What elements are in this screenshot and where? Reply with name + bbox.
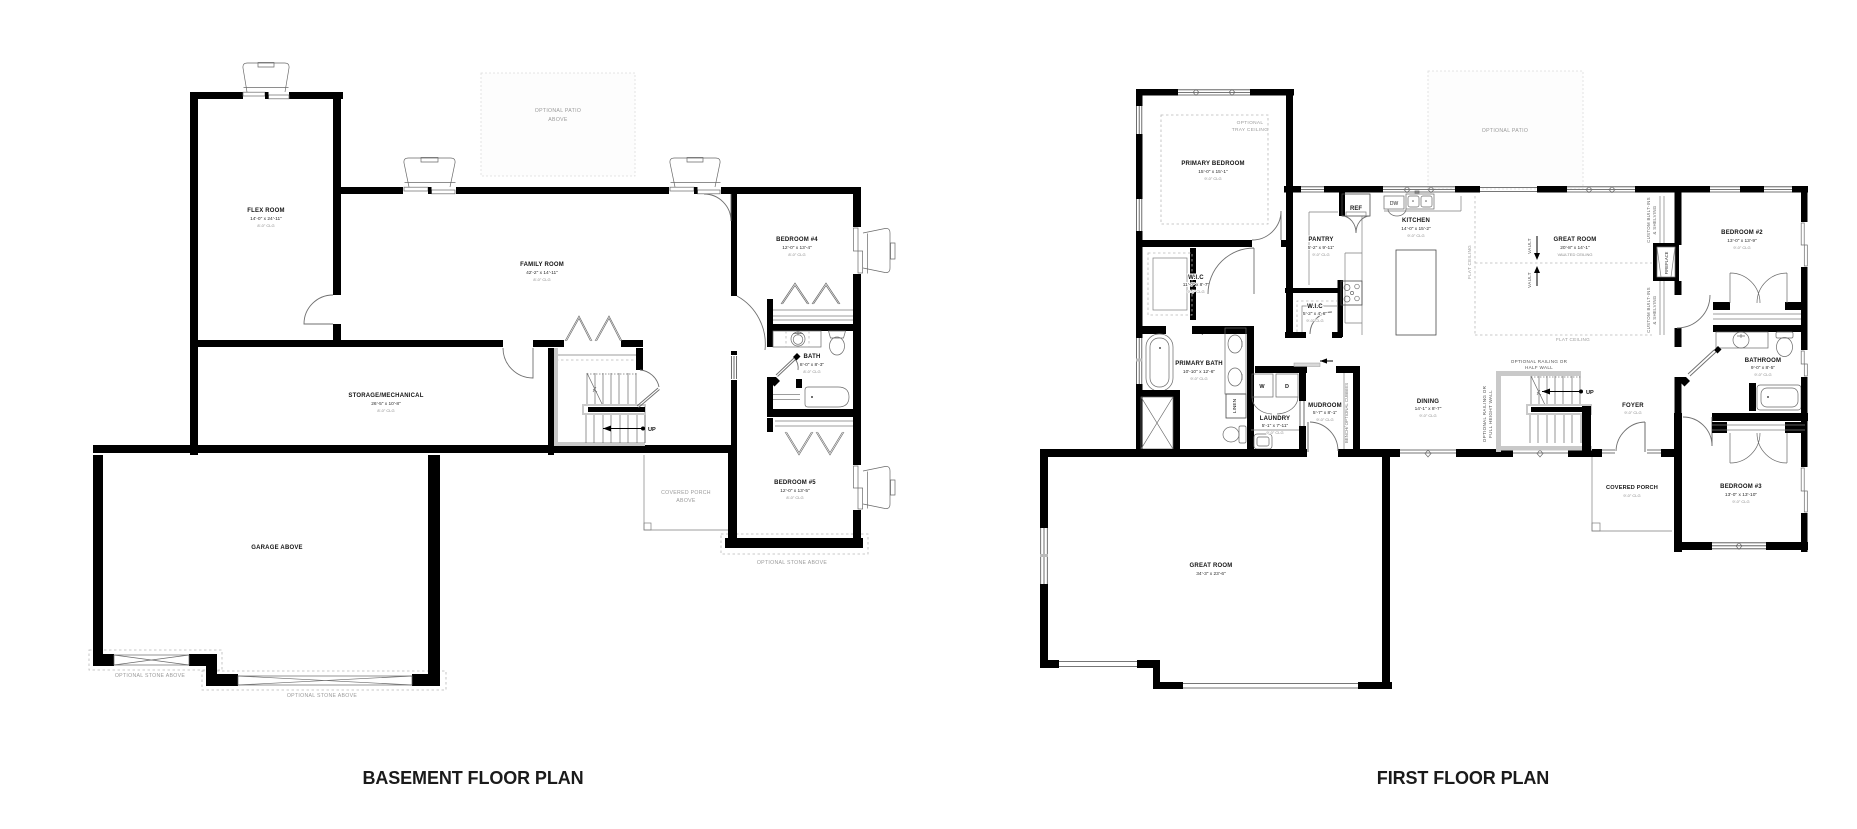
svg-text:VAULT: VAULT — [1527, 238, 1532, 254]
svg-text:BEDROOM #4: BEDROOM #4 — [776, 237, 818, 243]
svg-text:W.I.C: W.I.C — [1188, 275, 1204, 281]
svg-text:9'-0" CLG: 9'-0" CLG — [1266, 430, 1283, 435]
svg-text:PANTRY: PANTRY — [1308, 237, 1333, 243]
svg-text:W: W — [1259, 384, 1265, 390]
svg-text:BENCH/ OPTIONAL CUBBIES: BENCH/ OPTIONAL CUBBIES — [1344, 383, 1349, 443]
svg-text:9'-0" CLG: 9'-0" CLG — [1306, 318, 1323, 323]
svg-text:13'-0" x 13'-10": 13'-0" x 13'-10" — [1725, 492, 1757, 498]
svg-text:GREAT ROOM: GREAT ROOM — [1554, 237, 1597, 243]
svg-text:9'-0" CLG: 9'-0" CLG — [1407, 233, 1424, 238]
svg-text:15'-0" x 15'-1": 15'-0" x 15'-1" — [1198, 169, 1228, 175]
svg-text:FLAT CEILING: FLAT CEILING — [1556, 337, 1590, 342]
svg-text:5'-2" x 9'-11": 5'-2" x 9'-11" — [1308, 245, 1335, 251]
svg-text:& SHELVING: & SHELVING — [1652, 205, 1657, 234]
svg-text:20'-8" x 14'-1": 20'-8" x 14'-1" — [1560, 245, 1590, 251]
svg-text:ABOVE: ABOVE — [676, 498, 696, 504]
svg-text:8'-0" CLG: 8'-0" CLG — [257, 223, 274, 228]
svg-text:ABOVE: ABOVE — [548, 117, 568, 123]
svg-text:9'-0" CLG: 9'-0" CLG — [1419, 413, 1436, 418]
svg-text:LINEN: LINEN — [1232, 398, 1238, 413]
svg-text:9'-0" CLG: 9'-0" CLG — [1312, 252, 1329, 257]
svg-text:8'-0" CLG: 8'-0" CLG — [803, 369, 820, 374]
svg-text:D: D — [1285, 384, 1289, 390]
svg-text:9'-0" x 8'-5": 9'-0" x 8'-5" — [1751, 365, 1775, 371]
svg-text:14'-0" x 15'-2": 14'-0" x 15'-2" — [1401, 226, 1431, 232]
svg-text:12'-0" x 13'-5": 12'-0" x 13'-5" — [780, 488, 810, 494]
svg-text:9'-0" CLG: 9'-0" CLG — [1624, 410, 1641, 415]
svg-text:9'-0" CLG: 9'-0" CLG — [1190, 376, 1207, 381]
svg-text:PRIMARY BEDROOM: PRIMARY BEDROOM — [1181, 161, 1244, 167]
svg-text:8'-0" CLG: 8'-0" CLG — [786, 495, 803, 500]
svg-text:9'-0" CLG: 9'-0" CLG — [1204, 176, 1221, 181]
svg-text:8'-0" CLG: 8'-0" CLG — [533, 277, 550, 282]
svg-text:14'-1" x 8'-7": 14'-1" x 8'-7" — [1415, 406, 1442, 412]
svg-text:OPTIONAL RAILING OR: OPTIONAL RAILING OR — [1482, 385, 1487, 442]
svg-text:BEDROOM #2: BEDROOM #2 — [1721, 230, 1763, 236]
svg-text:HALF WALL: HALF WALL — [1525, 365, 1553, 370]
svg-text:KITCHEN: KITCHEN — [1402, 218, 1430, 224]
svg-text:5'-7" x 8'-1": 5'-7" x 8'-1" — [1313, 410, 1337, 416]
svg-text:BEDROOM #5: BEDROOM #5 — [774, 480, 816, 486]
svg-text:GREAT ROOM: GREAT ROOM — [1190, 563, 1233, 569]
svg-text:STORAGE/MECHANICAL: STORAGE/MECHANICAL — [348, 393, 423, 399]
svg-text:VAULTED CEILING: VAULTED CEILING — [1558, 252, 1593, 257]
svg-text:COVERED PORCH: COVERED PORCH — [661, 490, 711, 496]
svg-text:8'-0" x 8'-3": 8'-0" x 8'-3" — [800, 362, 824, 368]
svg-text:BATH: BATH — [803, 354, 820, 360]
svg-text:PRIMARY BATH: PRIMARY BATH — [1175, 361, 1223, 367]
svg-text:BEDROOM #3: BEDROOM #3 — [1720, 484, 1762, 490]
svg-text:MUDROOM: MUDROOM — [1308, 403, 1342, 409]
svg-text:FAMILY ROOM: FAMILY ROOM — [520, 262, 564, 268]
svg-text:GARAGE ABOVE: GARAGE ABOVE — [251, 545, 303, 551]
svg-text:8'-0" CLG: 8'-0" CLG — [377, 408, 394, 413]
svg-text:9'-0" CLG: 9'-0" CLG — [1316, 417, 1333, 422]
svg-text:UP: UP — [1586, 390, 1594, 396]
svg-text:OPTIONAL STONE ABOVE: OPTIONAL STONE ABOVE — [757, 560, 828, 566]
svg-text:42'-2" x 14'-11": 42'-2" x 14'-11" — [526, 270, 558, 276]
svg-text:9'-0" CLG: 9'-0" CLG — [1754, 372, 1771, 377]
svg-text:34'-3" x 23'-6": 34'-3" x 23'-6" — [1196, 571, 1226, 577]
svg-text:10'-10" x 12'-6": 10'-10" x 12'-6" — [1183, 369, 1215, 375]
svg-text:FIRST FLOOR PLAN: FIRST FLOOR PLAN — [1377, 768, 1549, 788]
svg-text:& SHELVING: & SHELVING — [1652, 295, 1657, 324]
svg-text:OPTIONAL STONE ABOVE: OPTIONAL STONE ABOVE — [115, 673, 186, 679]
svg-text:LAUNDRY: LAUNDRY — [1260, 416, 1291, 422]
svg-text:TRAY CEILING: TRAY CEILING — [1232, 127, 1268, 133]
svg-text:OPTIONAL PATIO: OPTIONAL PATIO — [535, 108, 581, 114]
svg-text:CUSTOM BUILT-INS: CUSTOM BUILT-INS — [1646, 197, 1651, 243]
svg-text:14'-0" x 24'-11": 14'-0" x 24'-11" — [250, 216, 282, 222]
svg-text:FLEX ROOM: FLEX ROOM — [247, 208, 284, 214]
svg-text:DW: DW — [1390, 201, 1399, 207]
svg-text:BATHROOM: BATHROOM — [1745, 358, 1781, 364]
svg-text:8'-0" CLG: 8'-0" CLG — [788, 252, 805, 257]
svg-text:9'-0" CLG: 9'-0" CLG — [1732, 499, 1749, 504]
svg-text:OPTIONAL STONE ABOVE: OPTIONAL STONE ABOVE — [287, 693, 358, 699]
svg-text:DINING: DINING — [1417, 399, 1439, 405]
svg-text:VAULT: VAULT — [1527, 272, 1532, 288]
svg-text:CUSTOM BUILT-INS: CUSTOM BUILT-INS — [1646, 287, 1651, 333]
svg-text:FLAT CEILING: FLAT CEILING — [1467, 245, 1472, 279]
svg-text:9'-0" CLG: 9'-0" CLG — [1187, 289, 1204, 294]
svg-text:5'-1" x 7'-11": 5'-1" x 7'-11" — [1262, 423, 1289, 429]
svg-text:OPTIONAL RAILING OR: OPTIONAL RAILING OR — [1511, 359, 1568, 364]
svg-text:12'-0" x 13'-4": 12'-0" x 13'-4" — [782, 245, 812, 251]
svg-text:FIREPLACE: FIREPLACE — [1664, 251, 1669, 274]
svg-text:W.I.C: W.I.C — [1307, 304, 1323, 310]
svg-text:OPTIONAL: OPTIONAL — [1237, 120, 1264, 126]
svg-text:OPTIONAL PATIO: OPTIONAL PATIO — [1482, 128, 1528, 134]
svg-text:5'-2" x 4'-6": 5'-2" x 4'-6" — [1303, 311, 1327, 317]
svg-text:9'-0" CLG: 9'-0" CLG — [1733, 245, 1750, 250]
svg-text:9'-0" CLG: 9'-0" CLG — [1623, 493, 1640, 498]
svg-text:FULL HEIGHT WALL: FULL HEIGHT WALL — [1488, 390, 1493, 438]
svg-text:26'-5" x 10'-8": 26'-5" x 10'-8" — [371, 401, 401, 407]
svg-text:11'-0" x 8'-7": 11'-0" x 8'-7" — [1183, 282, 1210, 288]
svg-text:BASEMENT FLOOR PLAN: BASEMENT FLOOR PLAN — [362, 768, 583, 788]
svg-text:REF: REF — [1350, 206, 1362, 212]
svg-text:13'-0" x 13'-9": 13'-0" x 13'-9" — [1727, 238, 1757, 244]
svg-text:FOYER: FOYER — [1622, 403, 1644, 409]
svg-text:UP: UP — [648, 427, 656, 433]
svg-text:COVERED PORCH: COVERED PORCH — [1606, 485, 1658, 491]
